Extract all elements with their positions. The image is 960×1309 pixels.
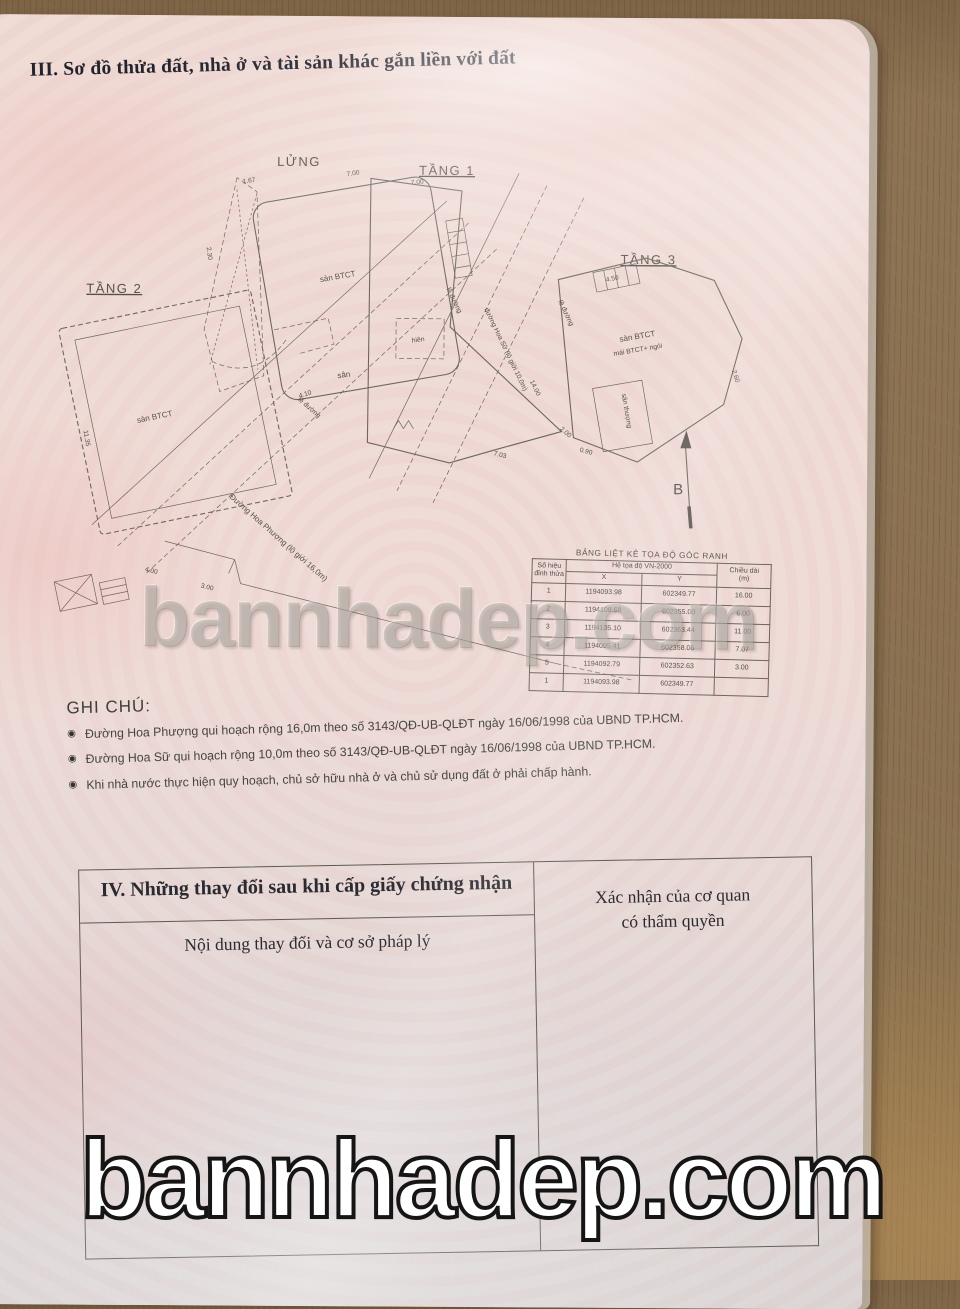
dim-label: 1.67: [242, 177, 256, 186]
dim-label: 11.35: [81, 430, 91, 447]
street1-line-3: [147, 247, 497, 575]
tang2-annex-boxes: [54, 568, 129, 613]
north-arrow-tail: [689, 506, 691, 528]
dim-label: 0.90: [579, 447, 593, 457]
tang2-outer-outline: [58, 290, 292, 535]
section4-heading: IV. Những thay đổi sau khi cấp giấy chứn…: [94, 872, 519, 903]
north-arrow-head: [680, 430, 691, 448]
lung-slab-outline: [251, 175, 462, 402]
center-watermark: bannhadep.com: [139, 569, 758, 670]
tang3-terrace-label: sân thượng: [620, 393, 633, 429]
lung-diagonal-2: [210, 193, 257, 364]
street-hoa-phuong: Đường Hoa Phượng (lộ giới 16,0m) lề đườn…: [92, 199, 497, 585]
floor-label-tang1: TẦNG 1: [419, 163, 475, 178]
lung-diagonal-1: [236, 190, 259, 370]
tang2-inner-outline: [75, 306, 276, 518]
note-text: Đường Hoa Phượng qui hoạch rộng 16,0m th…: [85, 712, 684, 740]
bullet-icon: ◉: [67, 729, 76, 739]
tang3-terrace-outline: [593, 380, 653, 451]
tang3-area-label-2: mái BTCT+ ngói: [613, 343, 663, 358]
north-arrow: B: [673, 430, 692, 528]
coord-cell-x: 1194093.98: [563, 673, 639, 693]
street1-line-2: [117, 221, 469, 549]
section4-col-confirm-l2: có thẩm quyền: [541, 906, 805, 935]
document-page: III. Sơ đồ thửa đất, nhà ở và tài sản kh…: [0, 14, 870, 1309]
photo-of-land-certificate: { "section3": { "title": "III. Sơ đồ thử…: [0, 0, 960, 1280]
section4-col-content-header: Nội dung thay đổi và cơ sở pháp lý: [95, 929, 520, 958]
street1-line-1: [92, 199, 447, 527]
tang2-area-label: sàn BTCT: [136, 409, 173, 425]
street-hoa-su: đường Hoa Sữ (lộ giới 10,0m) lề đường lề…: [369, 172, 584, 503]
north-label: B: [673, 481, 685, 498]
tang3-outline: [557, 258, 742, 463]
tang2-step-outline: [274, 318, 334, 354]
note-item: ◉ Khi nhà nước thực hiện quy hoạch, chủ …: [68, 760, 788, 792]
dim-label: 14.00: [528, 379, 542, 397]
dim-label: 7.03: [493, 450, 507, 460]
coord-cell-no: 1: [529, 672, 564, 691]
notes-section: GHI CHÚ: ◉ Đường Hoa Phượng qui hoạch rộ…: [66, 679, 789, 804]
coord-cell-y: 602349.77: [639, 675, 715, 695]
floor-label-tang2: TẦNG 2: [86, 281, 142, 296]
note-item: ◉ Đường Hoa Sữ qui hoạch rộng 10,0m theo…: [68, 734, 788, 766]
note-text: Khi nhà nước thực hiện quy hoạch, chủ sở…: [86, 765, 592, 791]
coord-cell-len: [714, 677, 768, 696]
dim-label: 7.00: [411, 179, 425, 187]
dim-label: 2.00: [558, 426, 573, 440]
dim-label: 2.30: [205, 247, 214, 261]
tang1-gate-mark: [393, 421, 413, 429]
note-text: Đường Hoa Sữ qui hoạch rộng 10,0m theo s…: [85, 738, 655, 766]
tang3-area-label-1: sàn BTCT: [619, 329, 656, 344]
bullet-icon: ◉: [68, 755, 77, 765]
bullet-icon: ◉: [68, 780, 77, 790]
dim-label: 7.00: [346, 169, 360, 178]
bottom-watermark: bannhadep.com: [80, 1116, 884, 1243]
dimension-labels: 7.00 2.30 1.67 4.10 7.00 7.03 14.00 2.00…: [81, 168, 742, 596]
tang1-porch-label: hiên: [411, 336, 425, 345]
street2-sidewalk-label-2: lề đường: [556, 299, 576, 328]
section3-heading: III. Sơ đồ thửa đất, nhà ở và tài sản kh…: [30, 45, 630, 82]
floor-label-lung: LỬNG: [277, 154, 321, 169]
floorplan-tang3: TẦNG 3 sàn BTCT mái BTCT+ ngói sân thượn…: [557, 252, 742, 463]
section4-header-divider: [80, 914, 534, 924]
section4-col-confirm-header: Xác nhận của cơ quan có thẩm quyền: [541, 881, 805, 935]
floorplan-tang1: TẦNG 1 hiên sân: [336, 162, 563, 463]
coord-col-vertex-l1: Số hiệu: [537, 562, 561, 570]
lung-area-label: sàn BTCT: [319, 269, 356, 284]
tang1-outline: [367, 178, 563, 463]
floorplan-tang2: TẦNG 2 sàn BTCT: [54, 280, 334, 614]
tang1-yard-label: sân: [337, 370, 351, 381]
